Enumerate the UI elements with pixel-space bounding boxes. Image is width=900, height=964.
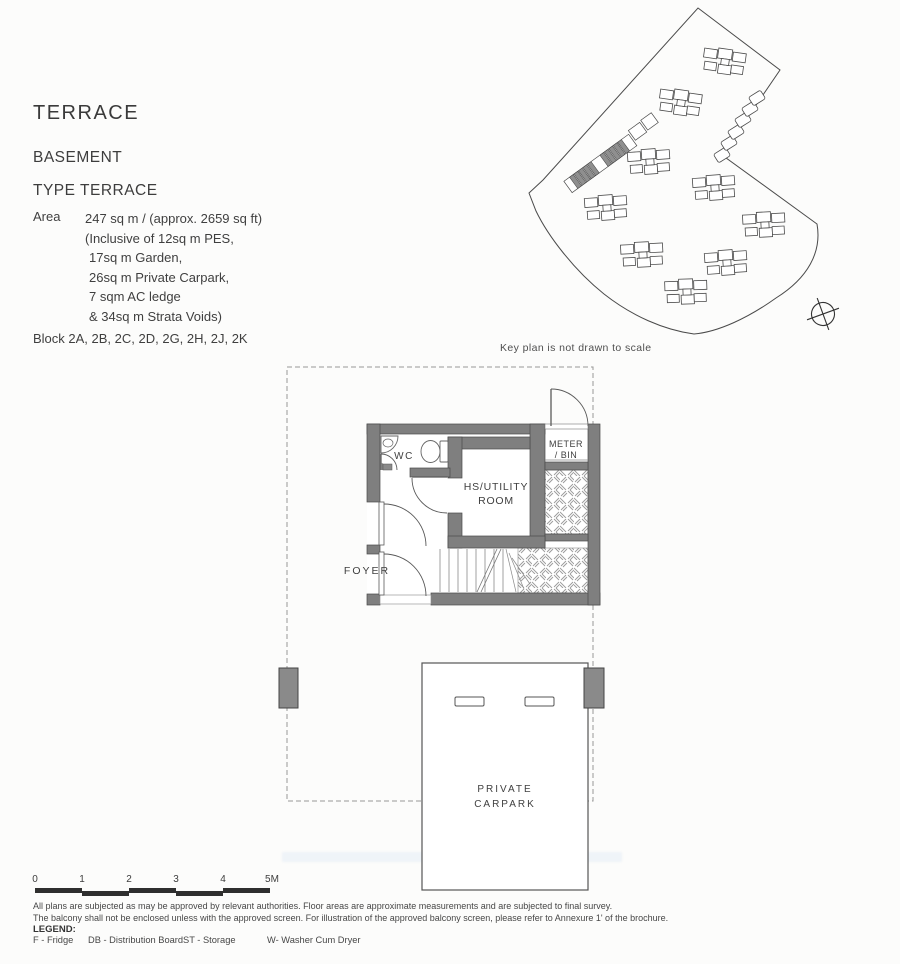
scale-bar-segment xyxy=(176,891,223,896)
wall xyxy=(545,462,588,470)
wall xyxy=(367,594,380,605)
building-cluster xyxy=(658,87,703,118)
wall xyxy=(367,424,545,434)
scale-tick: 0 xyxy=(32,874,38,885)
carpark-label: CARPARK xyxy=(474,799,536,810)
wall xyxy=(545,534,588,541)
wall xyxy=(431,593,600,605)
foyer-sill xyxy=(380,595,431,604)
building-cluster xyxy=(692,174,736,202)
carpark: PRIVATE CARPARK xyxy=(279,663,604,890)
hatch-area-upper xyxy=(545,470,588,534)
scale-bar-segment xyxy=(223,888,270,893)
scale-bar-segment xyxy=(129,888,176,893)
foyer-label: FOYER xyxy=(344,565,390,577)
building-cluster xyxy=(584,194,628,222)
wall xyxy=(367,424,380,502)
wc-label: WC xyxy=(394,451,414,462)
utility-room-label: HS/UTILITY xyxy=(464,481,529,493)
utility-room-label: ROOM xyxy=(478,495,514,507)
parking-bumper xyxy=(455,697,484,706)
wall xyxy=(367,545,380,554)
legend-item: W- Washer Cum Dryer xyxy=(267,935,361,945)
carpark-outline xyxy=(422,663,588,890)
legend-item: F - Fridge xyxy=(33,935,73,945)
legend-row: F - Fridge DB - Distribution Board ST - … xyxy=(0,935,900,949)
wall xyxy=(588,424,600,605)
scale-tick: 2 xyxy=(126,874,132,885)
wall-wc-bottom xyxy=(410,468,450,477)
parking-bumper xyxy=(525,697,554,706)
building-cluster xyxy=(665,278,708,304)
basin-bowl-icon xyxy=(383,439,393,447)
door-arc xyxy=(551,389,588,426)
scale-tick: 1 xyxy=(79,874,85,885)
building-cluster xyxy=(627,148,671,176)
toilet-bowl-icon xyxy=(421,441,440,463)
scale-bar-segment xyxy=(35,888,82,893)
key-plan xyxy=(529,8,845,336)
pillar xyxy=(584,668,604,708)
door-leaf xyxy=(379,502,384,545)
meter-bin-label: METER xyxy=(549,439,583,449)
wc-shelf xyxy=(383,464,392,470)
compass-icon xyxy=(801,292,845,336)
scale-bar xyxy=(35,888,270,897)
disclaimer-line: All plans are subjected as may be approv… xyxy=(33,900,612,912)
small-units-row xyxy=(713,90,765,163)
floor-plan: WC HS/UTILITY ROOM METER / BIN FOYER xyxy=(344,389,600,605)
terrace-strip xyxy=(564,134,637,192)
pillar xyxy=(279,668,298,708)
scale-tick: 5M xyxy=(265,874,279,885)
carpark-label: PRIVATE xyxy=(477,784,532,795)
hatch-area-lower xyxy=(518,548,588,593)
legend-item: DB - Distribution Board xyxy=(88,935,183,945)
scale-bar-ticks: 0 1 2 3 4 5M xyxy=(0,874,900,886)
toilet-tank-icon xyxy=(440,441,448,462)
drawing-layer: WC HS/UTILITY ROOM METER / BIN FOYER PRI… xyxy=(0,0,900,964)
building-cluster xyxy=(704,249,748,277)
wall-hs-bottom xyxy=(448,536,545,548)
brochure-page: TERRACE BASEMENT TYPE TERRACE Area 247 s… xyxy=(0,0,900,964)
wall xyxy=(530,424,545,548)
meter-bin-label: / BIN xyxy=(555,450,578,460)
scale-tick: 4 xyxy=(220,874,226,885)
building-cluster xyxy=(742,211,785,238)
terrace-strip-upper-units xyxy=(628,113,659,141)
scale-tick: 3 xyxy=(173,874,179,885)
legend-label: LEGEND: xyxy=(33,924,76,935)
building-cluster xyxy=(702,46,747,77)
disclaimer-line: The balcony shall not be enclosed unless… xyxy=(33,912,668,924)
legend-item: ST - Storage xyxy=(183,935,236,945)
building-cluster xyxy=(620,241,663,268)
scale-bar-segment xyxy=(82,891,129,896)
